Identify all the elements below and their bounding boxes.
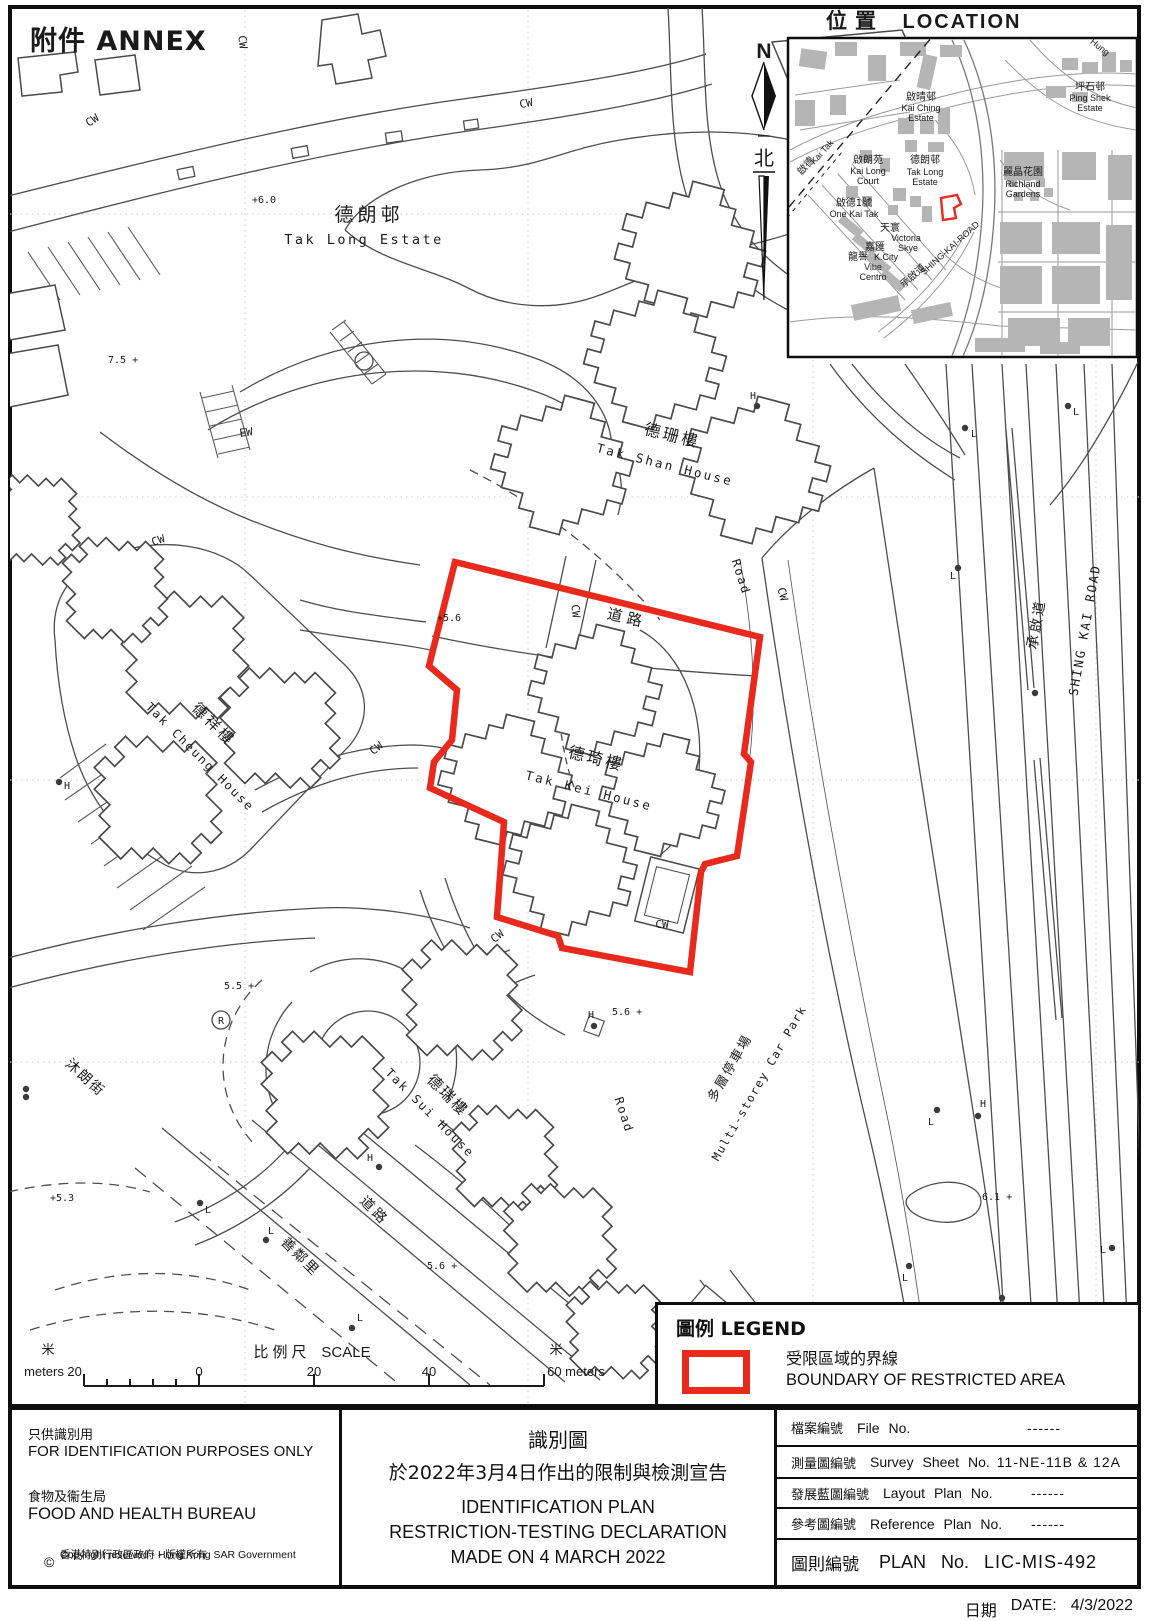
inset-vibe-centro-en1: Vibe (864, 262, 882, 272)
scale-title-zh: 比例尺 (253, 1343, 310, 1361)
inset-kai-ching-en2: Estate (908, 113, 934, 123)
inset-richland-zh: 麗晶花園 (1003, 165, 1043, 178)
title-block: 只供識別用 FOR IDENTIFICATION PURPOSES ONLY 食… (8, 1406, 1141, 1589)
cw-label: CW (518, 96, 534, 111)
cw-label: CW (568, 604, 582, 619)
reference-plan-value: ------ (1031, 1516, 1065, 1532)
north-label-zh: 北 (754, 146, 774, 170)
legend-boundary-zh: 受限區域的界線 (786, 1345, 898, 1369)
file-no-en: File No. (857, 1420, 910, 1436)
tak-long-estate-label-en: Tak Long Estate (284, 232, 443, 248)
title-block-left: 只供識別用 FOR IDENTIFICATION PURPOSES ONLY 食… (12, 1410, 342, 1585)
spot-height: 5.5 + (224, 981, 254, 992)
inset-victoria-skye-en1: Victoria (891, 233, 921, 243)
inset-title-zh: 位置 (826, 9, 884, 33)
inset-kai-long-zh: 啟朗苑 (853, 153, 883, 166)
l-marker: L (971, 429, 977, 440)
scale-meters-zh-left: 米 (41, 1343, 54, 1358)
plan-title-en: IDENTIFICATION PLAN (461, 1497, 655, 1518)
scale-label-left: meters 20 (24, 1364, 82, 1379)
inset-ping-shek-en1: Ping Shek (1069, 93, 1111, 103)
scale-tick-0: 0 (195, 1364, 202, 1379)
h-marker: H (588, 1010, 594, 1021)
road-label-en-bottom: Road (612, 1095, 637, 1134)
l-marker: L (1100, 1245, 1106, 1256)
title-block-right: 檔案編號 File No. ------ 測量圖編號 Survey Sheet … (777, 1410, 1137, 1585)
h-marker: H (367, 1153, 373, 1164)
tak-long-estate-label-zh: 德朗邨 (334, 204, 403, 226)
h-marker: H (64, 781, 70, 792)
spot-height: 7.5 + (108, 355, 138, 366)
inset-kai-long-en1: Kai Long (850, 166, 886, 176)
file-no-value: ------ (1027, 1420, 1061, 1436)
cw-label: CW (488, 927, 507, 946)
reference-plan-zh: 參考圖編號 (791, 1514, 856, 1533)
spot-height: +6.0 (252, 195, 276, 206)
date-en: DATE: (1011, 1597, 1057, 1621)
legend-box: 圖例 LEGEND 受限區域的界線 BOUNDARY OF RESTRICTED… (655, 1302, 1141, 1407)
north-letter: N (756, 40, 771, 63)
l-marker: L (950, 571, 956, 582)
inset-kai-ching-en1: Kai Ching (901, 103, 940, 113)
cw-label: CW (367, 739, 386, 758)
inset-k-city-en: K.City (874, 252, 899, 262)
spot-height: 5.6 + (427, 1261, 457, 1272)
cw-label: CW (235, 35, 250, 50)
location-inset: 位置 LOCATION (787, 9, 1138, 357)
scale-title-en: SCALE (321, 1344, 370, 1361)
spot-height: +5.6 (437, 613, 461, 624)
id-purpose-zh: 只供識別用 (28, 1424, 93, 1443)
reference-plan-en: Reference Plan No. (870, 1516, 1002, 1532)
l-marker: L (268, 1226, 274, 1237)
inset-vibe-centro-en2: Centro (859, 272, 886, 282)
spot-height: 5.6 + (612, 1007, 642, 1018)
l-marker: L (205, 1205, 211, 1216)
inset-one-kai-tak-en: One Kai Tak (830, 209, 879, 219)
plan-no-en: PLAN No. (879, 1552, 969, 1573)
l-marker: L (357, 1313, 363, 1324)
l-marker: L (928, 1117, 934, 1128)
road-label-en-top: Road (729, 557, 754, 596)
plan-subtitle-zh: 於2022年3月4日作出的限制與檢測宣告 (389, 1458, 728, 1485)
survey-sheet-value: 11-NE-11B & 12A (997, 1454, 1121, 1470)
inset-richland-en1: Richland (1005, 179, 1040, 189)
plan-no-zh: 圖則編號 (791, 1550, 859, 1575)
file-no-row: 檔案編號 File No. ------ (777, 1410, 1137, 1447)
h-marker: H (980, 1099, 986, 1110)
title-block-center: 識別圖 於2022年3月4日作出的限制與檢測宣告 IDENTIFICATION … (342, 1410, 777, 1585)
inset-ping-shek-zh: 坪石邨 (1075, 80, 1105, 93)
date-zh: 日期 (965, 1597, 997, 1621)
inset-richland-en2: Gardens (1006, 189, 1041, 199)
inset-one-kai-tak-zh: 啟德1號 (836, 196, 872, 209)
survey-sheet-zh: 測量圖編號 (791, 1453, 856, 1472)
scale-tick-40: 40 (422, 1364, 436, 1379)
copyright-symbol: © (44, 1554, 54, 1570)
plan-title-zh: 識別圖 (528, 1424, 588, 1453)
l-marker: L (902, 1273, 908, 1284)
survey-sheet-row: 測量圖編號 Survey Sheet No. 11-NE-11B & 12A (777, 1447, 1137, 1479)
plan-title-en2: RESTRICTION-TESTING DECLARATION (389, 1522, 727, 1543)
layout-plan-row: 發展藍圖編號 Layout Plan No. ------ (777, 1479, 1137, 1509)
file-no-zh: 檔案編號 (791, 1418, 843, 1437)
date-line: 日期 DATE: 4/3/2022 (965, 1597, 1133, 1621)
scale-tick-20: 20 (307, 1364, 321, 1379)
shing-kai-road-label-zh: 承啟道 (1025, 597, 1050, 650)
scale-label-right: 60 meters (547, 1364, 605, 1379)
ew-label: EW (239, 425, 254, 440)
layout-plan-zh: 發展藍圖編號 (791, 1484, 869, 1503)
inset-ping-shek-en2: Estate (1077, 103, 1103, 113)
cw-label: CW (83, 111, 102, 129)
cw-label: CW (150, 532, 167, 549)
plan-no-value: LIC-MIS-492 (984, 1552, 1097, 1573)
inset-tak-long-en1: Tak Long (907, 167, 944, 177)
tak-shan-house-label-zh: 德珊樓 (642, 419, 702, 451)
scale-meters-zh-right: 米 (549, 1343, 562, 1358)
legend-title: 圖例 LEGEND (676, 1314, 806, 1341)
date-value: 4/3/2022 (1071, 1597, 1133, 1621)
muk-long-street-label: 沐朗街 (62, 1056, 108, 1100)
bureau-zh: 食物及衞生局 (28, 1486, 106, 1505)
r-marker: R (218, 1016, 225, 1027)
layout-plan-en: Layout Plan No. (883, 1485, 993, 1501)
spot-height: 6.1 + (982, 1192, 1012, 1203)
scale-bar: 米 比例尺 SCALE 米 meters 20 0 20 40 60 meter… (24, 1343, 605, 1386)
annex-title: 附件 ANNEX (30, 26, 207, 57)
inset-title-en: LOCATION (903, 11, 1022, 33)
copyright-en: Copyright reserved - Hong Kong SAR Gover… (60, 1548, 296, 1562)
restricted-boundary-swatch (682, 1350, 750, 1394)
inset-tak-long-zh: 德朗邨 (910, 153, 940, 166)
h-marker: H (750, 391, 756, 402)
survey-sheet-en: Survey Sheet No. (870, 1454, 990, 1470)
spot-height: +5.3 (50, 1193, 74, 1204)
cw-label: CW (775, 586, 791, 603)
legend-boundary-en: BOUNDARY OF RESTRICTED AREA (786, 1371, 1065, 1390)
identification-plan-page: 德朗邨 Tak Long Estate 德珊樓 Tak Shan House 德… (0, 0, 1149, 1621)
plan-no-row: 圖則編號 PLAN No. LIC-MIS-492 (777, 1540, 1137, 1585)
cw-label: CW (655, 918, 669, 931)
id-purpose-en: FOR IDENTIFICATION PURPOSES ONLY (28, 1443, 313, 1460)
bureau-en: FOOD AND HEALTH BUREAU (28, 1505, 256, 1524)
inset-kai-long-en2: Court (857, 176, 880, 186)
layout-plan-value: ------ (1031, 1485, 1065, 1501)
inset-victoria-skye-en2: Skye (898, 243, 918, 253)
l-marker: L (1073, 407, 1079, 418)
inset-kai-ching-zh: 啟晴邨 (906, 90, 936, 103)
plan-title-en3: MADE ON 4 MARCH 2022 (450, 1547, 665, 1568)
reference-plan-row: 參考圖編號 Reference Plan No. ------ (777, 1509, 1137, 1540)
inset-tak-long-en2: Estate (912, 177, 938, 187)
